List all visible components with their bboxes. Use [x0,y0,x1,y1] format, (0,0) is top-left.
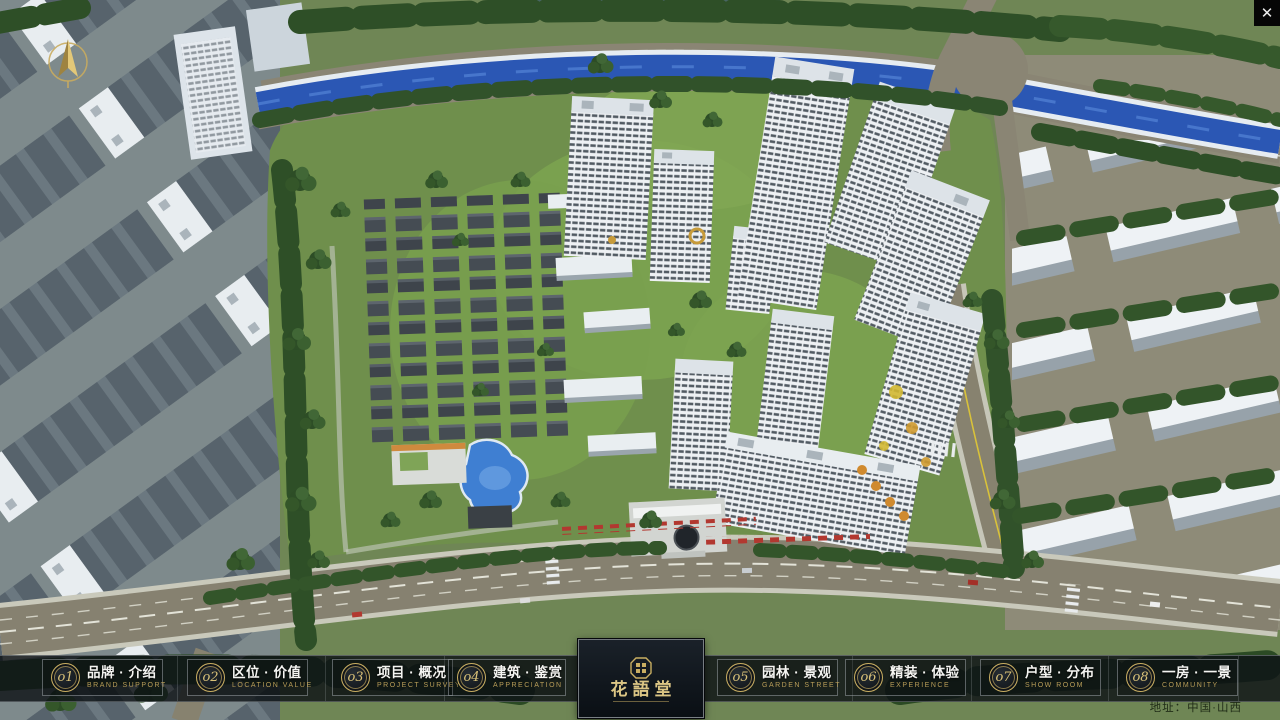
close-icon: ✕ [1261,4,1274,22]
nav-item-label-en: GARDEN STREET [762,682,841,689]
bottom-navigation-bar: o1 品牌 · 介绍 BRAND SUPPORT o2 区位 · 价值 LOCA… [0,655,1280,702]
nav-item-label-zh: 精装 · 体验 [890,666,960,680]
project-address: 地址：中国·山西 [1150,699,1242,715]
nav-item-label-en: BRAND SUPPORT [87,682,167,689]
aerial-masterplan-view[interactable] [0,0,1280,720]
nav-item-number-badge: o4 [457,663,486,692]
nav-item-label-zh: 建筑 · 鉴赏 [493,666,563,680]
nav-item-number-badge: o3 [341,663,370,692]
nav-item-label-en: APPRECIATION [493,682,563,689]
nav-item-label-zh: 区位 · 价值 [232,666,313,680]
nav-item-label-en: COMMUNITY [1162,682,1232,689]
project-logo-title: 花語堂 [606,682,677,699]
seal-icon [629,656,653,680]
project-logo-panel[interactable]: 花語堂 [578,639,704,718]
nav-item-project-survey[interactable]: o3 项目 · 概况 PROJECT SURVEY [332,659,453,696]
nav-item-location-value[interactable]: o2 区位 · 价值 LOCATION VALUE [187,659,308,696]
nav-item-fine-decoration[interactable]: o6 精装 · 体验 EXPERIENCE [845,659,966,696]
nav-item-unit-distribution[interactable]: o7 户型 · 分布 SHOW ROOM [980,659,1101,696]
nav-item-label-zh: 园林 · 景观 [762,666,841,680]
nav-item-label-zh: 一房 · 一景 [1162,666,1232,680]
divider [1238,656,1239,701]
nav-item-number-badge: o2 [196,663,225,692]
nav-item-number-badge: o6 [854,663,883,692]
nav-item-number-badge: o1 [51,663,80,692]
nav-item-brand-intro[interactable]: o1 品牌 · 介绍 BRAND SUPPORT [42,659,163,696]
divider [177,656,178,701]
presentation-window: ✕ o1 品牌 · 介绍 BRAND SUPPORT o2 区位 · 价值 LO… [0,0,1280,720]
nav-item-label-en: LOCATION VALUE [232,682,313,689]
nav-item-label-en: EXPERIENCE [890,682,960,689]
divider [971,656,972,701]
compass-icon [40,32,98,90]
divider [325,656,326,701]
close-button[interactable]: ✕ [1254,0,1280,26]
nav-item-label-zh: 品牌 · 介绍 [87,666,167,680]
nav-item-label-en: SHOW ROOM [1025,682,1095,689]
nav-item-one-room-one-view[interactable]: o8 一房 · 一景 COMMUNITY [1117,659,1238,696]
nav-item-number-badge: o8 [1126,663,1155,692]
nav-item-number-badge: o7 [989,663,1018,692]
nav-item-number-badge: o5 [726,663,755,692]
nav-item-garden-landscape[interactable]: o5 园林 · 景观 GARDEN STREET [717,659,838,696]
nav-item-label-zh: 户型 · 分布 [1025,666,1095,680]
courtyard-houses [364,193,568,446]
nav-item-architecture[interactable]: o4 建筑 · 鉴赏 APPRECIATION [448,659,566,696]
divider [1108,656,1109,701]
logo-subtitle-line [613,701,669,702]
masterplan-graphic [0,0,1280,720]
